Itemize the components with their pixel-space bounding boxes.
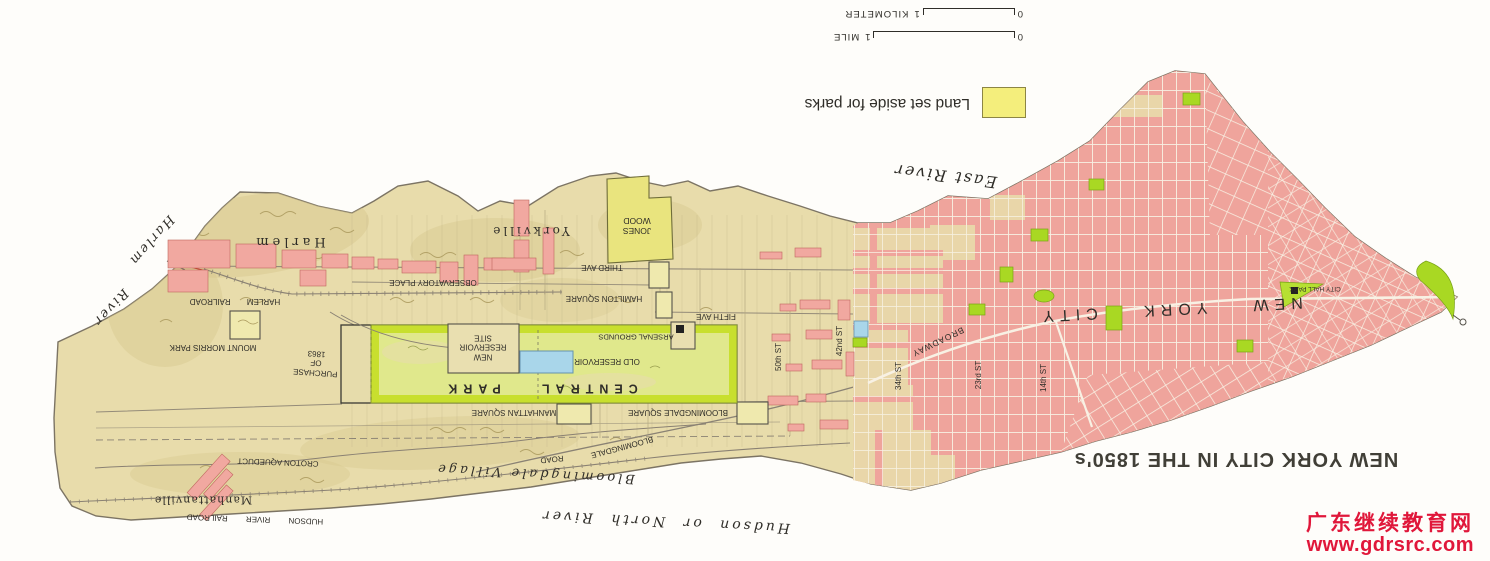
bloomingdale-square-box <box>737 402 768 424</box>
map-label-city-hall-park: CITY HALL PARK <box>1289 284 1341 292</box>
old-reservoir-shape <box>520 351 573 373</box>
legend-label: Land set aside for parks <box>805 94 970 112</box>
manhattan-square-box <box>557 404 591 424</box>
map-label-street-34th: 34th ST <box>894 362 904 390</box>
map-label-purchase-of-1863: PURCHASE OF 1863 <box>293 347 339 379</box>
map-label-harlem-town: Harlem <box>252 233 325 249</box>
watermark-site-name: 广东继续教育网 <box>1306 513 1474 536</box>
map-label-manhattanville: Manhattanville <box>154 493 252 506</box>
legend: Land set aside for parks <box>778 83 1026 123</box>
watermark: 广东继续教育网 www.gdrsrc.com <box>1306 513 1474 557</box>
scale-bar-mile <box>873 31 1014 38</box>
observatory-place-box <box>649 262 669 288</box>
map-label-hamilton-square: HAMILTON SQUARE <box>566 293 643 303</box>
map-label-central-park: CENTRAL PARK <box>442 381 637 396</box>
map-label-old-reservoir: OLD RESERVOIR <box>574 356 640 366</box>
battery-flag <box>1460 319 1466 325</box>
map-label-street-23rd: 23rd ST <box>974 361 984 389</box>
mount-morris-park-box <box>230 311 260 339</box>
map-label-third-ave: THIRD AVE <box>581 262 623 272</box>
distributing-reservoir <box>854 321 868 337</box>
scale-bar: 0 1 MILE 0 1 KILOMETER <box>830 6 1026 54</box>
city-street-grid <box>845 60 1470 500</box>
scale-mile-zero: 0 <box>1015 31 1026 42</box>
map-label-street-14th: 14th ST <box>1039 364 1049 392</box>
map-label-yorkville: Yorkville <box>490 224 570 238</box>
map-label-harlem-railroad: HARLEM RAILROAD <box>190 296 280 306</box>
map-label-fifth-ave: FIFTH AVE <box>696 311 736 321</box>
scale-km-zero: 0 <box>1015 8 1026 19</box>
map-label-new-reservoir-site: NEW RESERVOIR SITE <box>460 333 507 362</box>
map-label-observatory-place: OBSERVATORY PLACE <box>389 277 477 287</box>
map-label-jones-wood: JONES WOOD <box>623 216 651 236</box>
map-graphic <box>0 0 1490 561</box>
scale-row-kilometer: 0 1 KILOMETER <box>830 8 1026 31</box>
map-label-bloomingdale-square: BLOOMINGDALE SQUARE <box>628 407 728 417</box>
scale-mile-one: 1 <box>862 31 873 42</box>
scale-km-unit: KILOMETER <box>842 8 912 19</box>
map-page: HarlemYorkvilleManhattanvilleBloomingdal… <box>0 0 1490 561</box>
scale-km-one: 1 <box>911 8 922 19</box>
hamilton-square-box <box>656 292 672 318</box>
watermark-url: www.gdrsrc.com <box>1306 535 1474 557</box>
map-label-manhattan-square: MANHATTAN SQUARE <box>472 407 557 417</box>
map-label-street-50th: 50th ST <box>774 343 784 371</box>
scale-row-mile: 0 1 MILE <box>830 31 1026 54</box>
map-label-arsenal-grounds: ARSENAL GROUNDS <box>598 333 673 342</box>
scale-mile-unit: MILE <box>830 31 862 42</box>
legend-park-swatch <box>982 88 1026 119</box>
map-title: NEW YORK CITY IN THE 1850's <box>1040 438 1432 470</box>
scale-bar-kilometer <box>923 8 1015 15</box>
map-label-mount-morris-park: MOUNT MORRIS PARK <box>170 342 257 352</box>
arsenal-marker <box>676 325 684 333</box>
map-label-street-42nd: 42nd ST <box>835 326 845 356</box>
